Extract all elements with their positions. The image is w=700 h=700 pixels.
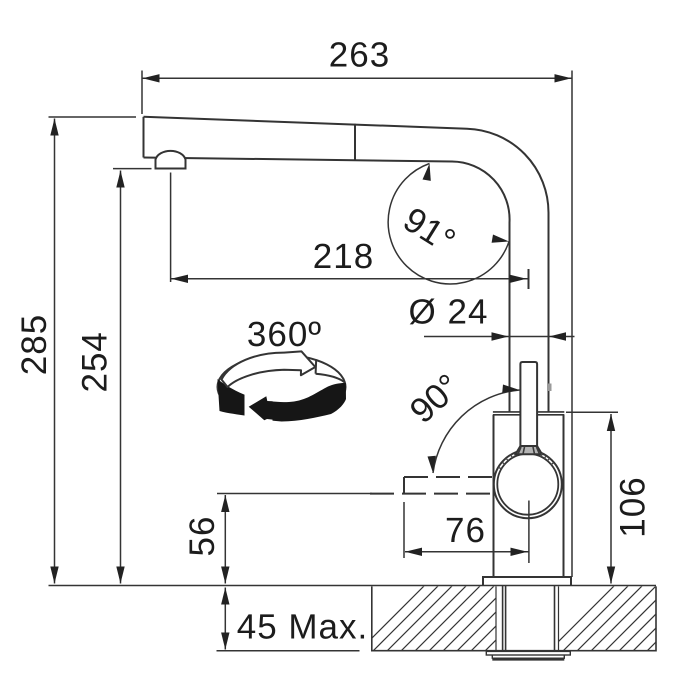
svg-text:Ø 24: Ø 24: [409, 292, 489, 331]
svg-text:360º: 360º: [247, 315, 322, 354]
svg-text:106: 106: [614, 476, 653, 537]
svg-text:45 Max.: 45 Max.: [237, 607, 369, 646]
svg-text:56: 56: [183, 516, 222, 557]
svg-text:90°: 90°: [402, 367, 467, 431]
svg-text:263: 263: [329, 35, 390, 74]
svg-text:218: 218: [313, 237, 374, 276]
svg-text:285: 285: [15, 314, 54, 375]
svg-text:254: 254: [75, 331, 114, 392]
svg-text:91°: 91°: [396, 200, 462, 261]
svg-text:76: 76: [445, 511, 486, 550]
